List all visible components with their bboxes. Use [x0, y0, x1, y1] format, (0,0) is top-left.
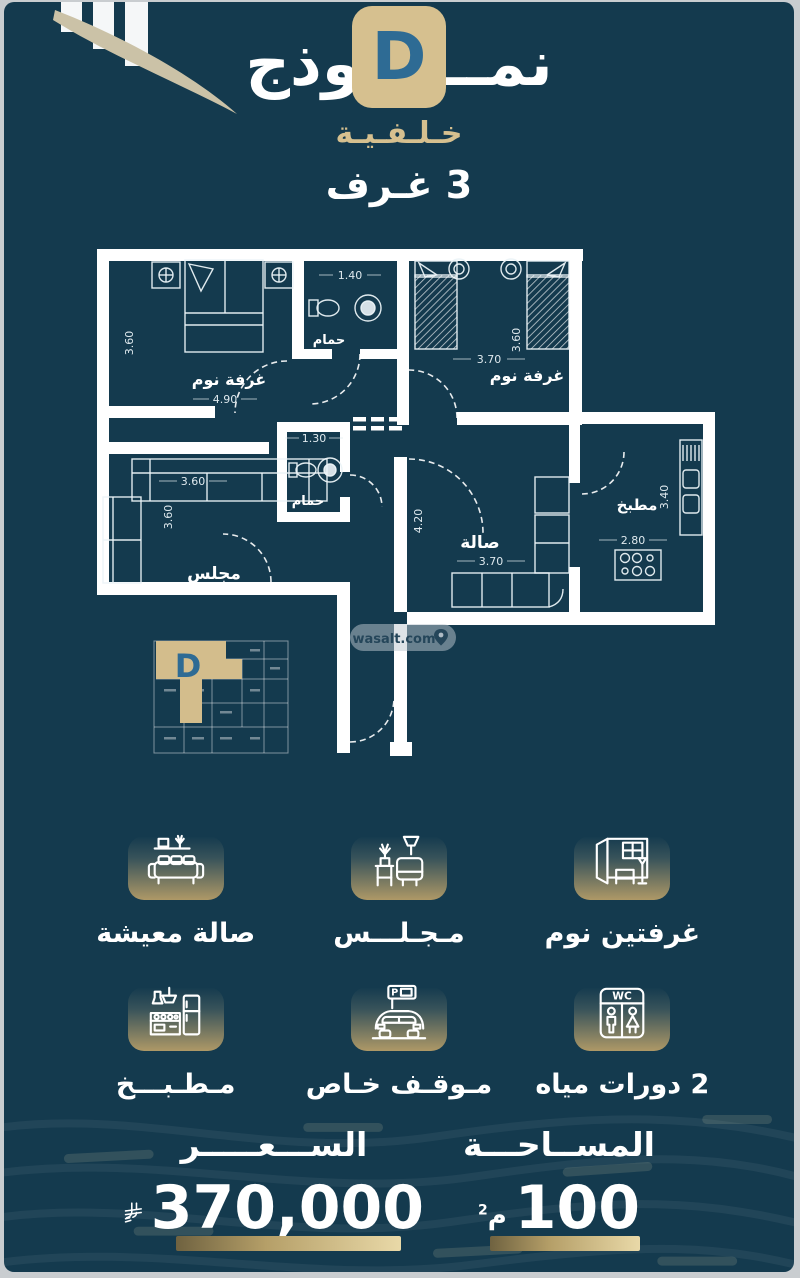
dim-bath2-w: 1.30 — [302, 432, 327, 445]
feature-glow — [574, 836, 670, 900]
feature-label-majlis: مـجـلـــس — [333, 918, 465, 949]
model-letter-box: D — [352, 6, 446, 108]
dim-majlis-h: 3.60 — [162, 505, 175, 530]
dim-bedroom2-h: 3.60 — [510, 328, 523, 353]
features-grid: غرفتين نوم مـجـلـــس — [64, 836, 734, 1100]
price-value-row: 370,000 — [124, 1178, 424, 1238]
price-underline-bar — [176, 1236, 401, 1251]
feature-label-bedrooms: غرفتين نوم — [545, 918, 701, 949]
dim-bedroom1-w: 4.90 — [213, 393, 238, 406]
price-label: الســـعـــــر — [124, 1125, 424, 1164]
feature-parking: P مـوقـف خـاص — [287, 987, 510, 1100]
room-label-majlis: مجلس — [187, 564, 241, 584]
dim-hall-v: 4.20 — [412, 509, 425, 534]
feature-glow — [128, 836, 224, 900]
model-title: نمــــــوذج D — [245, 4, 552, 132]
feature-label-parking: مـوقـف خـاص — [306, 1069, 492, 1100]
dim-kitchen-w: 2.80 — [621, 534, 646, 547]
flyer-page: نمــــــوذج D خـلـفـيـة 3 غـرف — [4, 2, 794, 1272]
dim-majlis-w: 3.60 — [181, 475, 206, 488]
area-label: المســاحـــة — [414, 1125, 704, 1164]
area-underline-bar — [490, 1236, 640, 1251]
feature-kitchen: مـطـبـــخ — [64, 987, 287, 1100]
footer: الســـعـــــر 370,000 المســاحـــة 100 — [4, 1107, 794, 1272]
dim-bedroom1-h: 3.60 — [123, 331, 136, 356]
feature-majlis: مـجـلـــس — [287, 836, 510, 949]
feature-bedrooms: غرفتين نوم — [511, 836, 734, 949]
feature-label-kitchen: مـطـبـــخ — [116, 1069, 236, 1100]
wc-icon-text: WC — [613, 990, 633, 1003]
dim-kitchen-v: 3.40 — [658, 485, 671, 510]
unit-d-marker: D — [175, 647, 202, 685]
room-label-hall: صالة — [460, 533, 500, 553]
feature-living-room: صالة معيشة — [64, 836, 287, 949]
header: نمــــــوذج D خـلـفـيـة 3 غـرف — [4, 2, 794, 207]
area-exponent: 2 — [478, 1203, 488, 1219]
rooms-count-label: 3 غـرف — [4, 163, 794, 207]
sar-currency-icon — [124, 1192, 143, 1232]
feature-label-wc: 2 دورات مياه — [535, 1069, 709, 1100]
armchair-icon — [368, 833, 430, 895]
room-label-bedroom1: غرفة نوم — [192, 370, 266, 389]
area-value: 100 — [515, 1178, 640, 1238]
kitchen-icon — [145, 984, 207, 1046]
feature-glow — [351, 836, 447, 900]
model-letter: D — [372, 2, 427, 117]
dim-bath1-w: 1.40 — [338, 269, 363, 282]
mini-building-plan: D — [154, 641, 288, 753]
watermark: wasalt.com — [350, 624, 456, 651]
car-icon: P — [368, 984, 430, 1046]
area-block: المســاحـــة 100 م2 — [414, 1125, 704, 1251]
watermark-text: wasalt.com — [352, 632, 435, 647]
feature-glow: WC — [574, 987, 670, 1051]
dim-hall-w: 3.70 — [479, 555, 504, 568]
feature-glow: P — [351, 987, 447, 1051]
wc-icon: WC — [591, 984, 653, 1046]
room-label-bath1: حمام — [313, 333, 346, 348]
price-value: 370,000 — [151, 1178, 424, 1238]
sofa-icon — [145, 833, 207, 895]
price-block: الســـعـــــر 370,000 — [124, 1125, 424, 1251]
feature-glow — [128, 987, 224, 1051]
area-unit: م2 — [478, 1196, 507, 1238]
floor-plan: 3.60 4.90 1.40 3.70 3.60 1.30 3.60 3.60 … — [97, 245, 719, 767]
room-label-kitchen: مطبخ — [617, 496, 658, 514]
parking-icon-text: P — [391, 988, 398, 999]
area-value-row: 100 م2 — [414, 1178, 704, 1238]
room-label-bath2: حمام — [292, 494, 325, 509]
room-label-bedroom2: غرفة نوم — [490, 366, 564, 385]
bedroom-icon — [591, 833, 653, 895]
dim-bedroom2-w: 3.70 — [477, 353, 502, 366]
feature-wc: WC 2 دورات مياه — [511, 987, 734, 1100]
feature-label-living-room: صالة معيشة — [96, 918, 255, 949]
